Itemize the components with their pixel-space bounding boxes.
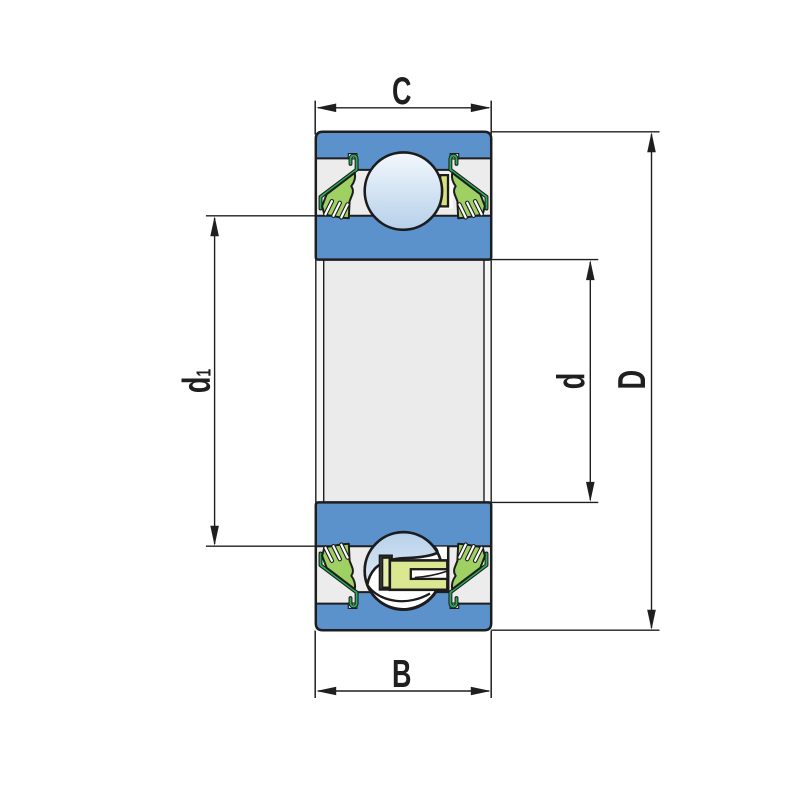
svg-text:d: d	[551, 373, 594, 389]
svg-text:D: D	[611, 370, 654, 389]
svg-text:C: C	[392, 70, 411, 113]
svg-text:B: B	[392, 653, 411, 696]
